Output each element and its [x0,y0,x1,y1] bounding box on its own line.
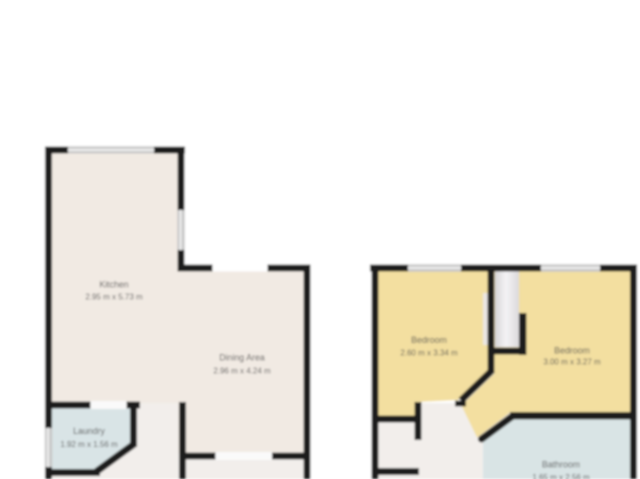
svg-text:Kitchen: Kitchen [99,280,128,290]
svg-text:Bathroom: Bathroom [542,460,580,470]
svg-text:Bedroom: Bedroom [411,335,447,345]
svg-text:Dining Area: Dining Area [219,353,265,363]
svg-text:3.00 m x 3.27 m: 3.00 m x 3.27 m [543,358,601,367]
svg-text:Bedroom: Bedroom [554,346,590,356]
svg-text:Laundry: Laundry [73,426,105,436]
svg-text:2.60 m x 3.34 m: 2.60 m x 3.34 m [400,349,458,358]
svg-text:1.65 m x 2.56 m: 1.65 m x 2.56 m [532,473,590,479]
svg-text:2.96 m x 4.24 m: 2.96 m x 4.24 m [213,367,271,376]
svg-text:1.92 m x 1.56 m: 1.92 m x 1.56 m [60,440,118,449]
svg-text:2.95 m x 5.73 m: 2.95 m x 5.73 m [85,293,143,302]
